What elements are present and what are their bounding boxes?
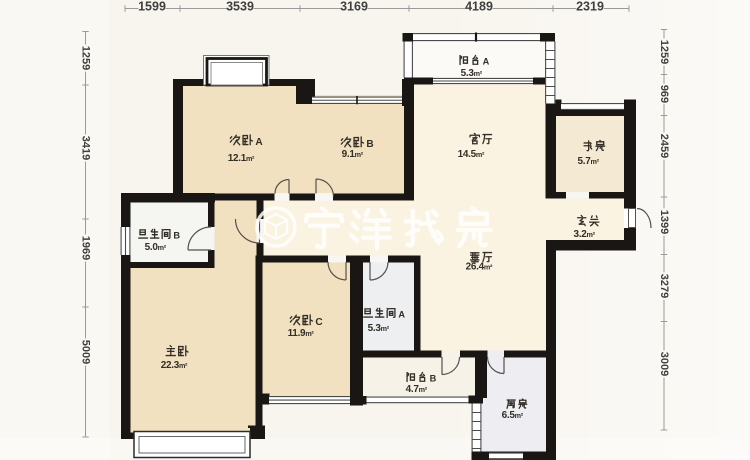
svg-text:6.5m²: 6.5m² <box>502 410 524 421</box>
svg-text:3169: 3169 <box>340 0 368 14</box>
svg-text:22.3m²: 22.3m² <box>161 360 188 371</box>
svg-text:B: B <box>173 230 180 240</box>
svg-text:969: 969 <box>658 85 670 103</box>
svg-text:B: B <box>366 139 373 150</box>
svg-text:9.1m²: 9.1m² <box>342 149 364 160</box>
svg-text:2459: 2459 <box>658 134 670 158</box>
svg-text:1399: 1399 <box>658 210 670 234</box>
svg-text:5.3m²: 5.3m² <box>368 323 390 334</box>
svg-text:A: A <box>398 309 405 319</box>
svg-text:12.1m²: 12.1m² <box>228 153 255 164</box>
svg-text:3419: 3419 <box>80 136 92 160</box>
svg-text:3539: 3539 <box>226 0 254 14</box>
svg-text:11.9m²: 11.9m² <box>288 328 315 339</box>
svg-text:A: A <box>483 56 490 66</box>
svg-text:3009: 3009 <box>658 352 670 376</box>
svg-text:A: A <box>255 137 263 148</box>
svg-text:3279: 3279 <box>658 274 670 298</box>
svg-text:14.5m²: 14.5m² <box>458 149 485 160</box>
svg-text:5.0m²: 5.0m² <box>145 242 167 253</box>
svg-text:2319: 2319 <box>576 0 604 14</box>
svg-text:B: B <box>430 373 437 383</box>
svg-text:5009: 5009 <box>80 340 92 364</box>
svg-text:1259: 1259 <box>80 46 92 70</box>
svg-text:1259: 1259 <box>658 40 670 64</box>
svg-text:C: C <box>315 317 323 328</box>
svg-text:1969: 1969 <box>80 236 92 260</box>
svg-text:4.7m²: 4.7m² <box>406 384 428 395</box>
svg-text:5.7m²: 5.7m² <box>578 156 600 167</box>
svg-text:3.2m²: 3.2m² <box>574 229 596 240</box>
svg-text:4189: 4189 <box>465 0 493 14</box>
svg-text:26.4m²: 26.4m² <box>466 262 493 273</box>
svg-text:5.3m²: 5.3m² <box>461 68 483 79</box>
svg-text:1599: 1599 <box>138 0 166 14</box>
